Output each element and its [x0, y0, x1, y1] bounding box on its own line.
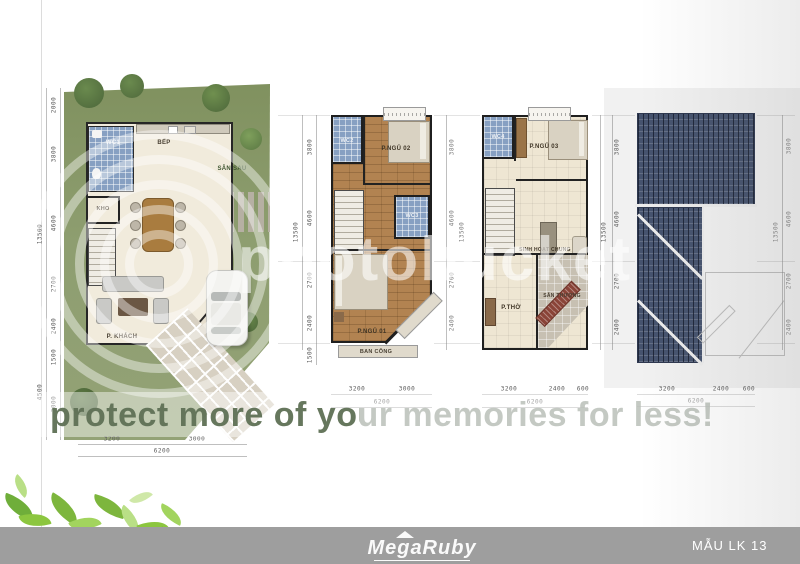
tree	[202, 84, 230, 112]
dim-label: 4600	[786, 211, 793, 227]
roof-lower	[637, 207, 703, 363]
car-rear-window	[211, 327, 241, 334]
dim-line	[782, 115, 783, 350]
dim-line	[78, 444, 247, 445]
dim-label: 3800	[307, 139, 314, 155]
dim-total-label: 13500	[37, 224, 44, 245]
kho-wall	[118, 196, 120, 224]
kitchen-counter	[136, 124, 230, 134]
kitchen-sink	[168, 126, 178, 134]
grid-line	[434, 343, 480, 344]
dim-label: 1500	[51, 349, 58, 365]
armchair	[96, 298, 112, 324]
room-label-wc3: WC3	[405, 213, 418, 219]
room-label-p-khach: P. KHÁCH	[107, 334, 138, 340]
room-label-ban-cong: BAN CÔNG	[360, 349, 392, 355]
dim-label: 2700	[51, 276, 58, 292]
dim-label: 2400	[307, 315, 314, 331]
brand-logo: MegaRuby	[352, 531, 492, 561]
dim-label: 2400	[51, 318, 58, 334]
kho-wall	[88, 222, 120, 224]
armchair	[153, 298, 169, 324]
sofa	[102, 276, 164, 292]
dim-label: 2000	[51, 97, 58, 113]
watermark-brand-text: photobucket	[238, 224, 632, 295]
dim-total-label: 13500	[773, 222, 780, 243]
room-label-wc4: WC4	[491, 134, 504, 140]
tree	[74, 78, 104, 108]
dim-label: 3800	[449, 139, 456, 155]
dining-chair	[175, 202, 186, 213]
dim-total-label: 6200	[154, 448, 170, 455]
dim-label: 4600	[51, 215, 58, 231]
dim-label: 3800	[786, 138, 793, 154]
wc1-sink	[92, 130, 102, 138]
dim-label: 3800	[51, 146, 58, 162]
bed-pillow	[579, 122, 584, 156]
coffee-table	[118, 298, 148, 316]
wardrobe	[516, 118, 527, 158]
grid-line	[278, 343, 330, 344]
room-label-p-tho: P.THỜ	[501, 305, 521, 311]
interior-wall	[516, 179, 586, 181]
dining-chair	[175, 220, 186, 231]
tree	[120, 74, 144, 98]
interior-wall	[365, 183, 430, 185]
room-label-kho: KHO	[96, 206, 109, 212]
bed-pillow	[420, 123, 426, 159]
dim-annotation-box	[383, 107, 426, 121]
altar-cabinet	[485, 298, 496, 326]
room-label-wc2: WC2	[340, 138, 353, 144]
dim-label: 2400	[449, 315, 456, 331]
room-label-san-sau: SÂN SAU	[217, 166, 246, 172]
dining-chair	[130, 238, 141, 249]
room-label-p-ngu-02: P.NGỦ 02	[382, 146, 411, 152]
dim-annotation-box	[528, 107, 571, 121]
room-label-bep: BẾP	[157, 140, 170, 146]
room-label-p-ngu-01: P.NGỦ 01	[358, 329, 387, 335]
car-windshield	[211, 292, 241, 301]
extension-line	[41, 0, 42, 527]
room-label-p-ngu-03: P.NGỦ 03	[530, 144, 559, 150]
watermark-tagline-dark: protect more of your memories for less!	[50, 396, 360, 435]
dining-chair	[130, 220, 141, 231]
watermark-tagline-dark-clip: protect more of your memories for less!	[50, 396, 360, 440]
dim-line	[78, 456, 247, 457]
dining-table	[142, 198, 174, 252]
room-label-wc1: WC1	[106, 140, 120, 146]
wc1-toilet	[92, 168, 101, 179]
interior-wall	[363, 117, 365, 185]
dining-chair	[130, 202, 141, 213]
brand-logo-text: MegaRuby	[352, 537, 492, 560]
dim-label: 2700	[786, 273, 793, 289]
dining-chair	[175, 238, 186, 249]
roof-upper	[637, 113, 755, 205]
model-label: MẪU LK 13	[692, 538, 767, 553]
dim-line	[46, 88, 47, 440]
tree	[240, 128, 262, 150]
nightstand	[334, 312, 344, 322]
grid-line	[434, 115, 480, 116]
kitchen-stove	[184, 126, 196, 134]
floorplan-sheet: WC1 BẾP SÂN SAU KHO P. KHÁCH HIÊN 2000 3…	[0, 0, 800, 564]
interior-wall	[514, 117, 516, 161]
car-roof	[211, 303, 241, 325]
grid-line	[278, 115, 330, 116]
kho-wall	[88, 196, 120, 198]
dim-line	[60, 88, 61, 440]
brand-logo-underline	[374, 560, 470, 561]
dim-label: 2400	[786, 319, 793, 335]
dim-label: 1500	[307, 347, 314, 363]
